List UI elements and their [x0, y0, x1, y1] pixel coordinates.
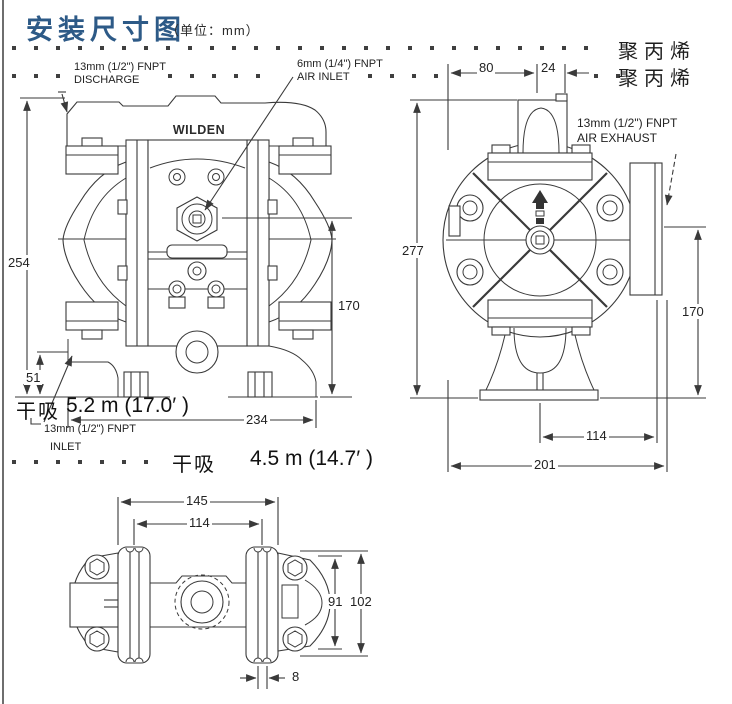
- dry-suction1-label: 干吸: [16, 395, 60, 424]
- air-exhaust-label-line1: 13mm (1/2") FNPT: [577, 116, 677, 130]
- unit-note: （单位：mm）: [166, 20, 260, 39]
- dim-114-side: 114: [584, 428, 609, 443]
- dim-170-front: 170: [336, 298, 362, 313]
- inlet-label-line1: 13mm (1/2") FNPT: [44, 423, 136, 436]
- material-row1: 聚丙烯: [618, 35, 696, 64]
- dry-suction1-value: 5.2 m (17.0′ ): [66, 394, 189, 418]
- dim-8: 8: [290, 669, 301, 684]
- dim-201: 201: [532, 457, 558, 472]
- page-title: 安装尺寸图: [26, 8, 186, 47]
- front-view-drawing: WILDEN: [58, 96, 336, 397]
- leader-dots-row2b: [168, 74, 270, 78]
- air-exhaust-label-line2: AIR EXHAUST: [577, 131, 657, 145]
- dim-277: 277: [400, 243, 426, 258]
- air-exhaust-label: 13mm (1/2") FNPT AIR EXHAUST: [577, 116, 677, 146]
- dim-114-bottom: 114: [187, 515, 212, 530]
- page: WILDEN: [0, 0, 732, 704]
- brand-logo: WILDEN: [173, 123, 225, 137]
- dry-suction2-label: 干吸: [172, 448, 216, 477]
- dim-80: 80: [477, 60, 495, 75]
- dry-suction2-value: 4.5 m (14.7′ ): [250, 447, 373, 471]
- dim-24: 24: [539, 60, 557, 75]
- dim-234: 234: [244, 412, 270, 427]
- discharge-label: 13mm (1/2") FNPT DISCHARGE: [74, 61, 166, 87]
- material-row2: 聚丙烯: [618, 62, 696, 91]
- dim-91: 91: [326, 594, 344, 609]
- air-inlet-label-line2: AIR INLET: [297, 71, 350, 83]
- leader-dots-row2a: [12, 74, 62, 78]
- discharge-label-line1: 13mm (1/2") FNPT: [74, 61, 166, 73]
- dim-170-side: 170: [680, 304, 706, 319]
- bottom-view-drawing: [70, 547, 330, 663]
- discharge-label-line2: DISCHARGE: [74, 74, 139, 86]
- bottom-view-dimensions: [118, 497, 368, 689]
- dim-145: 145: [184, 493, 210, 508]
- inlet-label-line2: INLET: [50, 441, 81, 454]
- dim-51: 51: [24, 370, 42, 385]
- air-inlet-label: 6mm (1/4") FNPT AIR INLET: [297, 58, 383, 84]
- dim-254: 254: [6, 255, 32, 270]
- leader-dots-row3: [12, 460, 164, 464]
- dim-102: 102: [348, 594, 374, 609]
- air-inlet-label-line1: 6mm (1/4") FNPT: [297, 58, 383, 70]
